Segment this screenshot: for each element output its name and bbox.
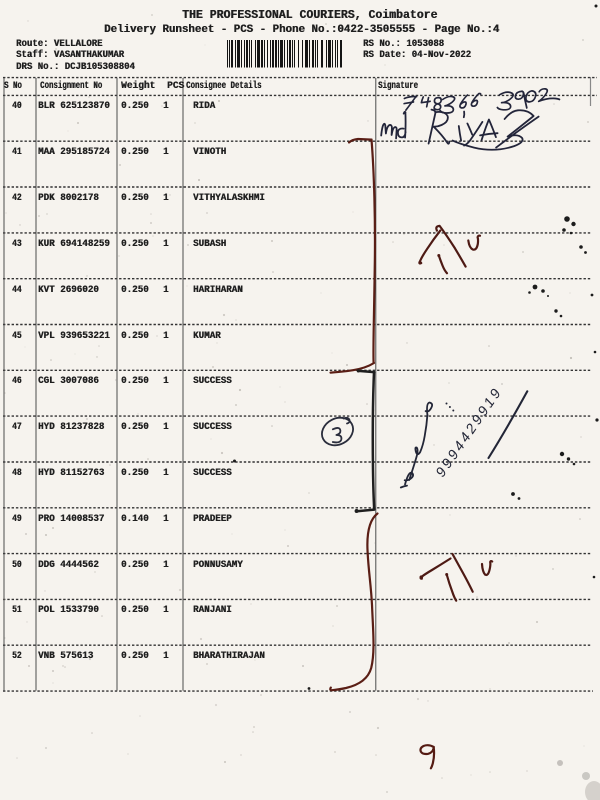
svg-text:9994429919: 9994429919 — [432, 383, 505, 479]
